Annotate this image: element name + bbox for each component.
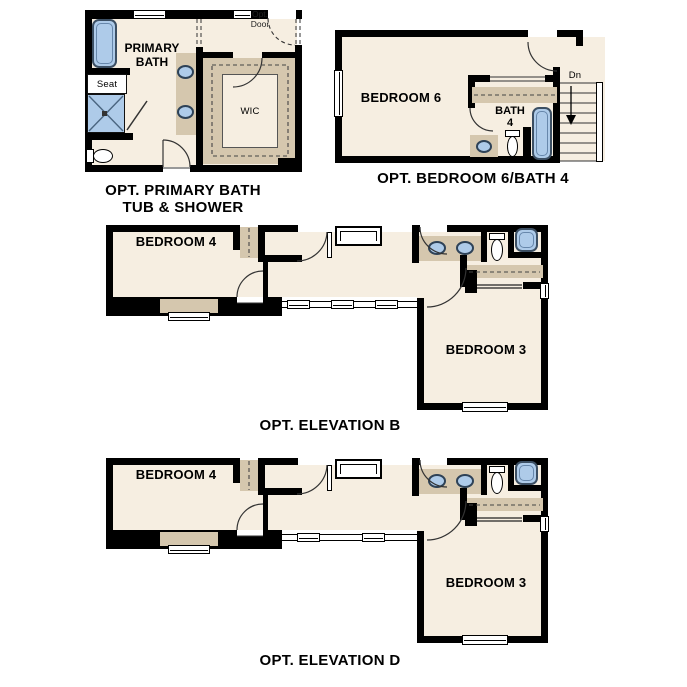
wall	[106, 225, 237, 232]
window	[331, 300, 354, 309]
closet-shelf	[467, 498, 543, 511]
wall	[465, 503, 477, 526]
sink	[428, 241, 446, 255]
window	[334, 70, 343, 117]
wic-room-label: WIC	[222, 106, 278, 117]
floorplan-sheet: { "colors": { "floor": "#f6eee1", "tan":…	[0, 0, 687, 687]
closet-shelf	[467, 265, 543, 278]
door-leaf	[327, 232, 332, 258]
bathtub	[532, 107, 552, 160]
window	[462, 635, 508, 645]
wall	[508, 485, 541, 491]
wall	[335, 30, 528, 37]
shower-seat: Seat	[87, 74, 127, 94]
window	[462, 402, 508, 412]
bedroom3-room-label: BEDROOM 3	[436, 575, 536, 590]
stair-rail	[596, 82, 603, 162]
wall	[576, 37, 583, 46]
closet-counter	[472, 87, 557, 103]
bath4-room-label: BATH 4	[490, 105, 530, 129]
bathtub	[515, 461, 538, 485]
opt-door-label: Opt. Door	[239, 10, 281, 29]
wall	[412, 458, 419, 496]
toilet-bowl	[507, 136, 518, 157]
sink	[456, 474, 474, 488]
bathtub	[515, 228, 538, 252]
window	[540, 516, 549, 532]
wall	[263, 262, 268, 297]
window	[375, 300, 398, 309]
wall	[523, 282, 541, 289]
wall	[106, 225, 113, 304]
primary-bath-room-label: PRIMARY BATH	[112, 41, 192, 69]
stair-niche	[335, 459, 382, 479]
wall	[417, 531, 424, 636]
wall	[465, 270, 477, 293]
toilet-bowl	[93, 149, 113, 163]
window-seat	[160, 299, 218, 313]
stairs-down-label: Dn	[561, 70, 589, 81]
bedroom4-room-label: BEDROOM 4	[126, 234, 226, 249]
wall	[106, 458, 237, 465]
stair-niche	[335, 226, 382, 246]
bedroom3-room-label: BEDROOM 3	[436, 342, 536, 357]
wall	[295, 45, 302, 172]
wall	[541, 225, 548, 410]
wall	[263, 495, 268, 530]
wall	[233, 458, 240, 483]
wall	[523, 515, 541, 522]
window-seat-glass	[168, 545, 210, 554]
door-opening	[237, 297, 263, 303]
bedroom4-room-label: BEDROOM 4	[126, 467, 226, 482]
plan-caption: OPT. ELEVATION B	[106, 417, 554, 434]
plan-bedroom6-bath4: BEDROOM 6 BATH 4 Dn OPT. BEDROOM 6/BATH …	[335, 30, 611, 192]
sink	[476, 140, 492, 153]
closet-shelf	[240, 227, 258, 258]
plan-elevation-d: BEDROOM 4 BEDROOM 3 OPT. ELEVATION D	[106, 458, 556, 676]
sink	[177, 105, 194, 119]
toilet-bowl	[491, 239, 503, 261]
window	[540, 283, 549, 299]
wall	[258, 488, 302, 495]
wall	[106, 458, 113, 537]
toilet-bowl	[491, 472, 503, 494]
window-seat	[160, 532, 218, 546]
wall	[278, 158, 302, 172]
shower	[87, 94, 125, 133]
wall	[417, 298, 424, 403]
wall	[557, 30, 583, 37]
wall	[545, 75, 560, 82]
plan-primary-bath: Seat PRIMARY BATH WIC Opt. Door OPT. PRI…	[85, 10, 307, 222]
window	[297, 533, 320, 542]
wall	[265, 458, 298, 465]
seat-label: Seat	[97, 79, 117, 90]
wall	[412, 225, 419, 263]
window-seat-glass	[168, 312, 210, 321]
door-leaf	[327, 465, 332, 491]
wall	[523, 127, 531, 163]
wall	[481, 232, 487, 262]
window	[362, 533, 385, 542]
plan-elevation-b: BEDROOM 4 BEDROOM 3 OPT. ELEVATION B	[106, 225, 556, 440]
closet-shelf	[240, 460, 258, 491]
wall	[85, 133, 133, 140]
plan-caption: OPT. ELEVATION D	[106, 652, 554, 669]
window	[133, 10, 166, 19]
wall	[196, 47, 203, 172]
door-opening	[237, 530, 263, 536]
sink	[456, 241, 474, 255]
plan-caption: OPT. PRIMARY BATH TUB & SHOWER	[73, 182, 293, 216]
wall	[265, 225, 298, 232]
wall	[258, 255, 302, 262]
sink	[428, 474, 446, 488]
wall	[233, 225, 240, 250]
wall	[541, 458, 548, 643]
wall	[85, 165, 163, 172]
wall	[508, 252, 541, 258]
wall	[481, 465, 487, 495]
bedroom6-room-label: BEDROOM 6	[351, 90, 451, 105]
window	[287, 300, 310, 309]
plan-caption: OPT. BEDROOM 6/BATH 4	[335, 170, 611, 187]
